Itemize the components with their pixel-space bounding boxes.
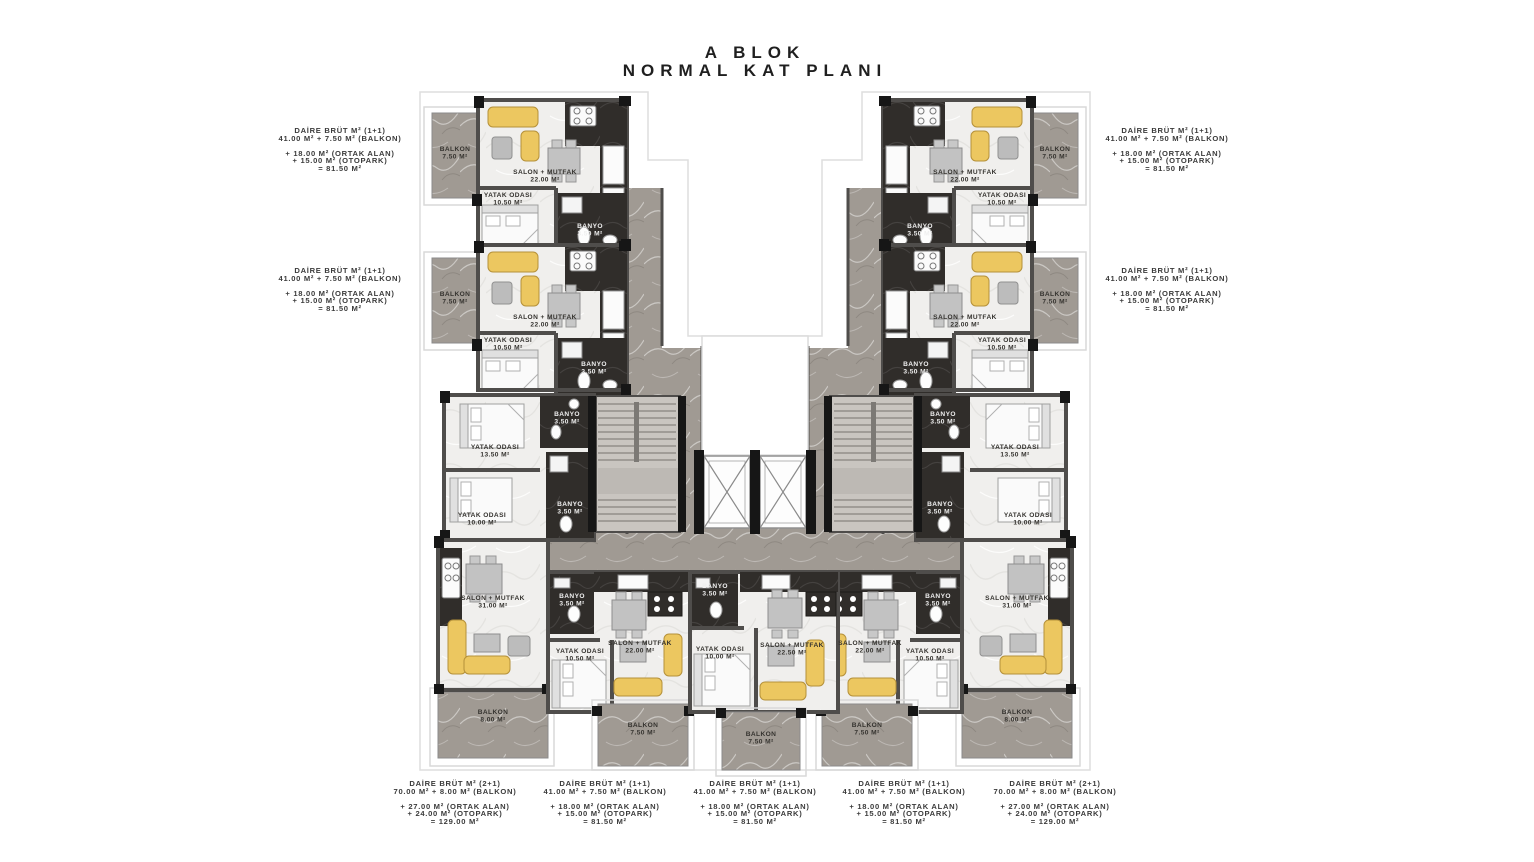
title-line-2: NORMAL KAT PLANI [0,62,1510,79]
bed-icon [552,660,606,708]
unit-2plus1-salon [430,536,554,766]
chair-icon [492,137,512,159]
sofa-icon [614,678,662,696]
toilet-icon [568,606,580,622]
sink-icon [569,399,579,409]
sofa-icon [760,682,806,700]
room-label: BANYO3.50 M² [554,411,580,426]
wing-right [879,96,1086,396]
floor-plan-svg: BALKON7.50 M²SALON + MUTFAK22.00 M²YATAK… [408,85,1114,777]
floor-plan-page: A BLOK NORMAL KAT PLANI DAİRE BRÜT M² (1… [0,0,1534,862]
room-label: BALKON7.50 M² [852,722,883,737]
room-label: BANYO3.50 M² [927,501,953,516]
summary-total: = 129.00 M² [957,818,1153,826]
room-label: BALKON7.50 M² [1040,291,1071,306]
room-label: BALKON7.50 M² [628,722,659,737]
sofa-icon [448,620,466,674]
room-label: BANYO3.50 M² [907,223,933,238]
room-label: BALKON7.50 M² [746,731,777,746]
room-label: BANYO3.50 M² [930,411,956,426]
stove-icon [648,592,682,616]
unit-2plus1-salon-right [956,536,1080,766]
toilet-icon [710,602,722,618]
fridge-icon [603,146,624,184]
stove-icon [806,592,836,616]
room-label: BALKON8.00 M² [478,709,509,724]
kitchen-sink-icon [618,575,648,589]
coffee-table-icon [474,634,500,652]
balcony [438,692,548,758]
room-label: BANYO3.50 M² [581,361,607,376]
room-label: BANYO3.50 M² [925,593,951,608]
room-label: BALKON7.50 M² [440,291,471,306]
sink-icon [554,578,570,588]
wing-left [424,96,631,396]
title-line-1: A BLOK [0,44,1510,61]
armchair-icon [521,131,539,161]
bed-icon [482,205,538,245]
stove-icon [442,558,460,598]
sofa-icon [488,107,538,127]
stove-icon [570,106,596,126]
bed-icon [694,654,750,706]
elevator-machine-void [702,336,808,455]
room-label: BANYO3.50 M² [577,223,603,238]
shower-icon [562,197,582,213]
kitchen-sink-icon [762,575,790,589]
sofa-icon [464,656,510,674]
room-label: BALKON7.50 M² [440,146,471,161]
staircase [588,396,686,532]
armchair-icon [508,636,530,656]
room-label: BANYO3.50 M² [702,583,728,598]
room-label: BANYO3.50 M² [557,501,583,516]
shower-icon [550,456,568,472]
elevator-right [760,456,806,528]
room-label: BALKON7.50 M² [1040,146,1071,161]
summary-gross: 70.00 M² + 8.00 M² (BALKON) [957,788,1153,796]
room-label: BANYO3.50 M² [559,593,585,608]
room-label: BALKON8.00 M² [1002,709,1033,724]
unit-summary-bottom-5: DAİRE BRÜT M² (2+1) 70.00 M² + 8.00 M² (… [957,780,1153,826]
elevator-left [704,456,750,528]
toilet-icon [551,425,561,439]
toilet-icon [560,516,572,532]
bed-icon [460,404,524,448]
page-title: A BLOK NORMAL KAT PLANI [0,44,1510,79]
room-label: BANYO3.50 M² [903,361,929,376]
